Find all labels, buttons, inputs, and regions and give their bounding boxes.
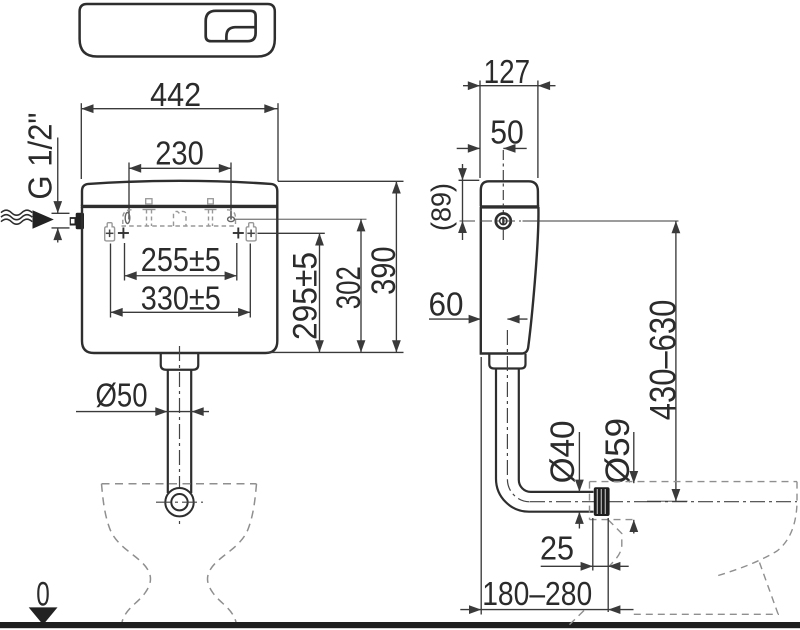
svg-text:Ø50: Ø50 [96, 377, 148, 414]
svg-text:230: 230 [155, 136, 204, 173]
svg-text:302: 302 [330, 266, 368, 309]
svg-text:50: 50 [490, 115, 524, 152]
svg-text:Ø40: Ø40 [544, 420, 582, 483]
svg-text:430–630: 430–630 [642, 300, 683, 421]
svg-text:25: 25 [540, 531, 574, 568]
svg-text:255±5: 255±5 [141, 242, 221, 279]
svg-text:180–280: 180–280 [482, 576, 592, 613]
svg-text:(89): (89) [426, 183, 457, 231]
svg-text:390: 390 [365, 246, 403, 295]
svg-text:60: 60 [429, 286, 464, 323]
svg-text:G 1/2": G 1/2" [22, 113, 59, 200]
